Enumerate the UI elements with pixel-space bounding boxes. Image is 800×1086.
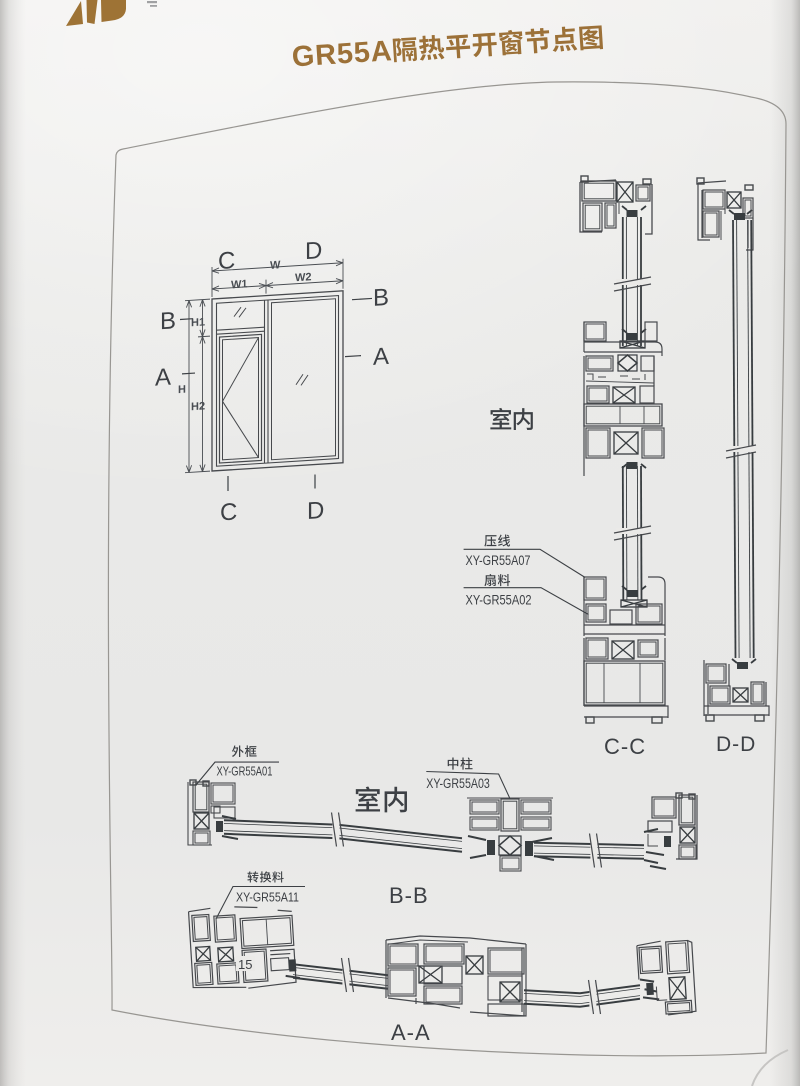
- svg-text:C: C: [220, 498, 237, 526]
- svg-text:A: A: [155, 364, 171, 392]
- svg-text:D-D: D-D: [716, 733, 756, 756]
- svg-text:B: B: [373, 284, 389, 312]
- svg-text:D: D: [305, 237, 322, 265]
- svg-text:XY-GR55A07: XY-GR55A07: [466, 553, 531, 568]
- svg-text:H2: H2: [191, 400, 205, 413]
- svg-text:GR55A: GR55A: [291, 35, 394, 73]
- svg-text:C-C: C-C: [604, 734, 646, 759]
- svg-text:D: D: [307, 497, 324, 525]
- svg-text:C: C: [218, 247, 235, 275]
- svg-text:H1: H1: [191, 316, 205, 329]
- svg-text:W2: W2: [295, 271, 311, 284]
- svg-text:A: A: [373, 343, 389, 371]
- svg-text:XY-GR55A01: XY-GR55A01: [217, 763, 273, 778]
- svg-text:XY-GR55A02: XY-GR55A02: [466, 592, 532, 607]
- svg-text:B-B: B-B: [389, 883, 429, 908]
- svg-text:XY-GR55A11: XY-GR55A11: [236, 890, 299, 905]
- svg-text:B: B: [160, 307, 176, 335]
- svg-text:W1: W1: [231, 278, 247, 291]
- svg-text:H: H: [178, 384, 186, 396]
- svg-text:15: 15: [238, 957, 252, 972]
- svg-text:XY-GR55A03: XY-GR55A03: [426, 776, 490, 791]
- svg-text:W: W: [270, 259, 281, 272]
- svg-text:A-A: A-A: [391, 1020, 431, 1045]
